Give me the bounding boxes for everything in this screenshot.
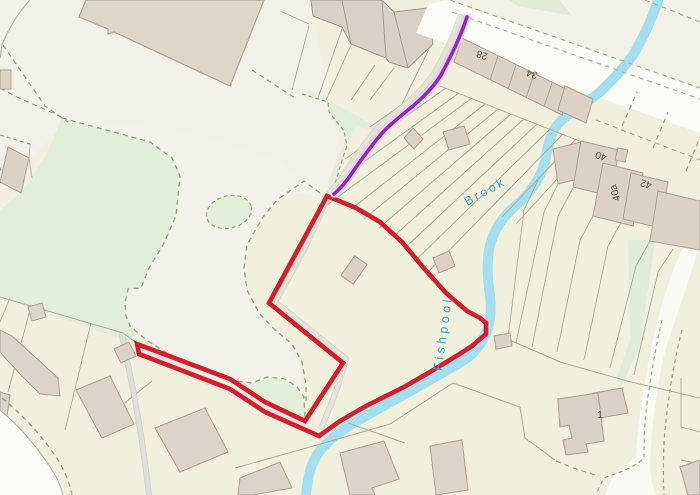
svg-text:1: 1 bbox=[597, 410, 603, 421]
svg-text:o: o bbox=[0, 164, 1, 174]
